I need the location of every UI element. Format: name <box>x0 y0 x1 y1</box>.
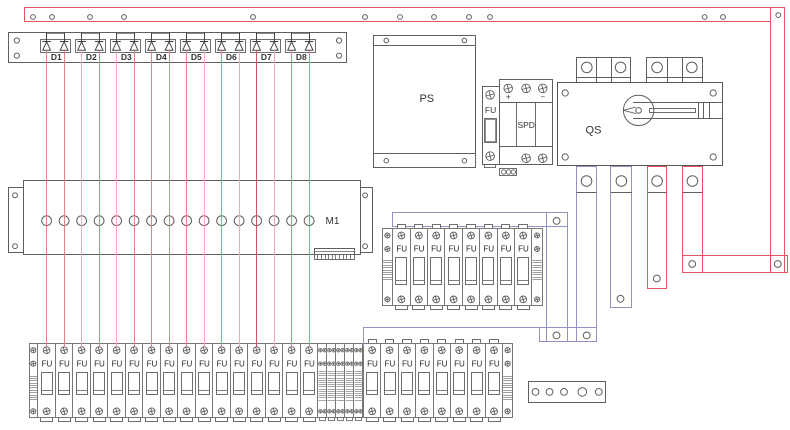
svg-text:FU: FU <box>77 359 88 368</box>
svg-text:SPD: SPD <box>517 120 534 130</box>
svg-text:FU: FU <box>485 105 496 115</box>
svg-text:D1: D1 <box>51 52 62 62</box>
svg-text:FU: FU <box>396 245 407 254</box>
svg-text:FU: FU <box>304 359 315 368</box>
svg-text:D5: D5 <box>191 52 202 62</box>
svg-text:FU: FU <box>182 359 193 368</box>
svg-text:FU: FU <box>414 245 425 254</box>
svg-text:QS: QS <box>586 124 602 136</box>
svg-text:FU: FU <box>199 359 210 368</box>
svg-text:D3: D3 <box>121 52 132 62</box>
svg-text:FU: FU <box>252 359 263 368</box>
svg-text:D4: D4 <box>156 52 167 62</box>
svg-text:FU: FU <box>466 245 477 254</box>
svg-text:D2: D2 <box>86 52 97 62</box>
svg-text:FU: FU <box>94 359 105 368</box>
svg-text:D6: D6 <box>226 52 237 62</box>
svg-text:FU: FU <box>518 245 529 254</box>
svg-text:FU: FU <box>367 359 378 368</box>
svg-text:−: − <box>540 93 545 102</box>
svg-text:D8: D8 <box>296 52 307 62</box>
svg-text:FU: FU <box>454 359 465 368</box>
svg-text:FU: FU <box>437 359 448 368</box>
svg-text:FU: FU <box>112 359 123 368</box>
svg-text:FU: FU <box>164 359 175 368</box>
svg-text:FU: FU <box>489 359 500 368</box>
svg-text:+: + <box>506 93 511 102</box>
svg-text:FU: FU <box>42 359 53 368</box>
svg-text:D7: D7 <box>261 52 272 62</box>
svg-text:FU: FU <box>234 359 245 368</box>
svg-text:FU: FU <box>431 245 442 254</box>
svg-text:FU: FU <box>385 359 396 368</box>
svg-text:FU: FU <box>483 245 494 254</box>
svg-text:FU: FU <box>287 359 298 368</box>
svg-text:PS: PS <box>419 93 434 105</box>
svg-text:FU: FU <box>129 359 140 368</box>
svg-text:FU: FU <box>217 359 228 368</box>
svg-text:FU: FU <box>472 359 483 368</box>
svg-text:M1: M1 <box>326 216 340 227</box>
svg-text:FU: FU <box>269 359 280 368</box>
svg-text:FU: FU <box>501 245 512 254</box>
svg-text:FU: FU <box>449 245 460 254</box>
svg-text:FU: FU <box>59 359 70 368</box>
svg-text:FU: FU <box>419 359 430 368</box>
svg-text:FU: FU <box>402 359 413 368</box>
svg-text:FU: FU <box>147 359 158 368</box>
